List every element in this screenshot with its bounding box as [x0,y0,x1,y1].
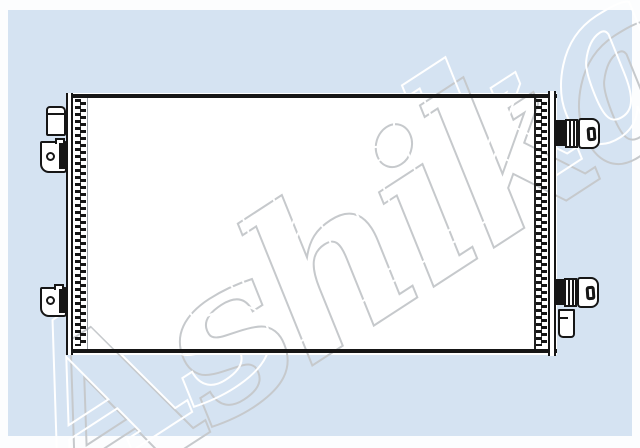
bracket-lip-line [47,113,65,115]
fitting-ribs [565,119,578,148]
condenser-core-face [66,93,557,355]
bracket-bolt-hole [46,296,55,305]
condenser-bottom-edge [68,349,557,353]
fin-column [80,102,86,345]
condenser-top-edge [67,94,557,98]
fitting-ribs [564,278,577,307]
product-image: Ashika Ashika [0,0,640,448]
bracket-foot [64,123,68,132]
bracket-weld-bar [59,143,65,169]
bracket-weld-bar [59,289,65,313]
fitting-end-cap [578,118,600,149]
fitting-base-block [555,279,564,305]
right-side-plate [548,91,556,356]
fitting-rib [569,121,571,146]
fitting-rib [572,280,574,305]
fitting-port-slot [587,127,597,142]
bracket-below-bottom-fitting [558,309,575,338]
mounting-bracket-top-left-upper [46,106,66,136]
right-fin-strip [536,99,547,346]
core-right-edge-line [534,98,536,349]
fitting-rib [573,121,575,146]
left-fin-strip [75,99,86,346]
core-left-edge-line [87,98,88,349]
left-side-plate [66,93,73,355]
bracket-bolt-hole [46,152,55,161]
fitting-base-block [556,120,565,146]
fin-column [541,102,547,345]
mounting-bracket-bottom-left [40,287,67,317]
bracket-notch-line [560,317,568,319]
pipe-fitting-bottom-right [555,277,600,308]
pipe-fitting-top-right [556,118,601,149]
fitting-port-slot [586,286,596,301]
fitting-rib [568,280,570,305]
mounting-bracket-top-left-lower [40,141,67,173]
fitting-end-cap [577,277,599,308]
